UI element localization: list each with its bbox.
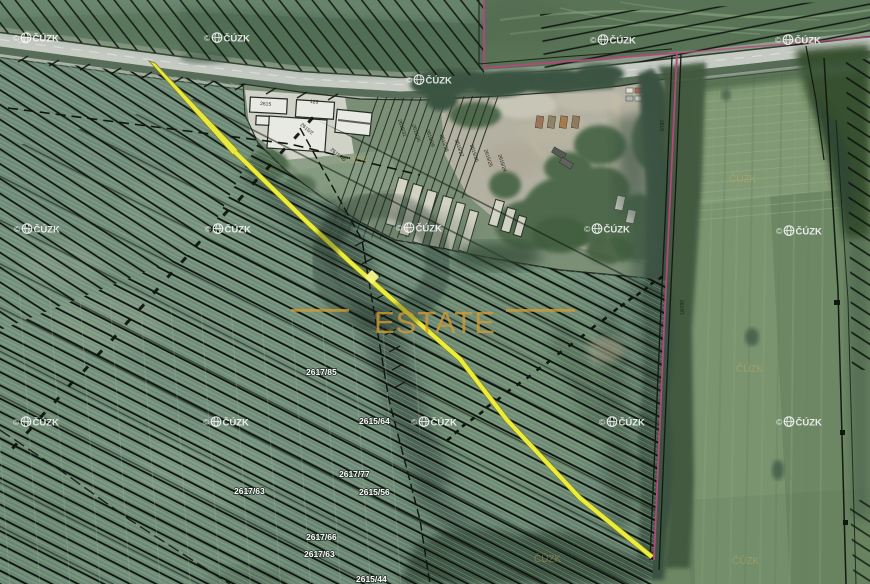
svg-text:ČÚZK: ČÚZK [534,552,562,565]
svg-text:2617/85: 2617/85 [306,367,337,377]
svg-text:ESTATE: ESTATE [374,305,496,340]
svg-text:2617/77: 2617/77 [339,469,370,479]
svg-text:123: 123 [310,99,319,106]
svg-text:2615: 2615 [260,101,272,108]
svg-text:2615/64: 2615/64 [359,416,390,426]
svg-text:2615/44: 2615/44 [356,574,387,584]
svg-text:2616/1: 2616/1 [678,300,685,316]
svg-text:2617/66: 2617/66 [306,532,337,542]
svg-text:2617/63: 2617/63 [234,486,265,496]
svg-text:2616: 2616 [658,120,665,132]
svg-text:2615/56: 2615/56 [359,487,390,497]
svg-text:©: © [13,33,20,43]
svg-text:2617/63: 2617/63 [304,549,335,559]
svg-text:ČÚZK: ČÚZK [33,33,60,45]
svg-text:ČÚZK: ČÚZK [729,172,757,185]
svg-text:ČÚZK: ČÚZK [736,362,764,375]
svg-text:ČÚZK: ČÚZK [732,554,760,567]
